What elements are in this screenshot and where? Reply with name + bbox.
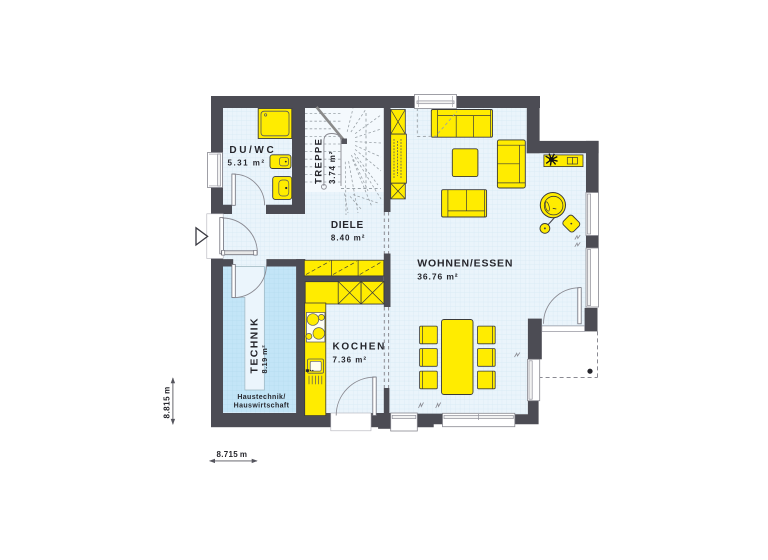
svg-text:TECHNIK: TECHNIK (249, 317, 261, 373)
svg-text:7.36 m²: 7.36 m² (333, 356, 368, 365)
svg-text:8.40 m²: 8.40 m² (331, 234, 366, 243)
svg-text:5.31 m²: 5.31 m² (228, 158, 266, 167)
svg-text:KOCHEN: KOCHEN (333, 342, 387, 353)
svg-text:DIELE: DIELE (331, 220, 364, 231)
svg-text:36.76 m²: 36.76 m² (417, 272, 458, 282)
svg-text:8.19 m²: 8.19 m² (260, 345, 269, 374)
svg-text:Hauswirtschaft: Hauswirtschaft (234, 403, 290, 410)
svg-text:8.715 m: 8.715 m (217, 450, 248, 459)
svg-text:3.74 m²: 3.74 m² (328, 151, 337, 184)
svg-text:Haustechnik/: Haustechnik/ (237, 394, 285, 401)
svg-text:DU/WC: DU/WC (229, 145, 276, 156)
svg-text:WOHNEN/ESSEN: WOHNEN/ESSEN (417, 258, 513, 270)
svg-text:TREPPE: TREPPE (314, 138, 325, 184)
svg-text:8.815 m: 8.815 m (163, 386, 172, 418)
